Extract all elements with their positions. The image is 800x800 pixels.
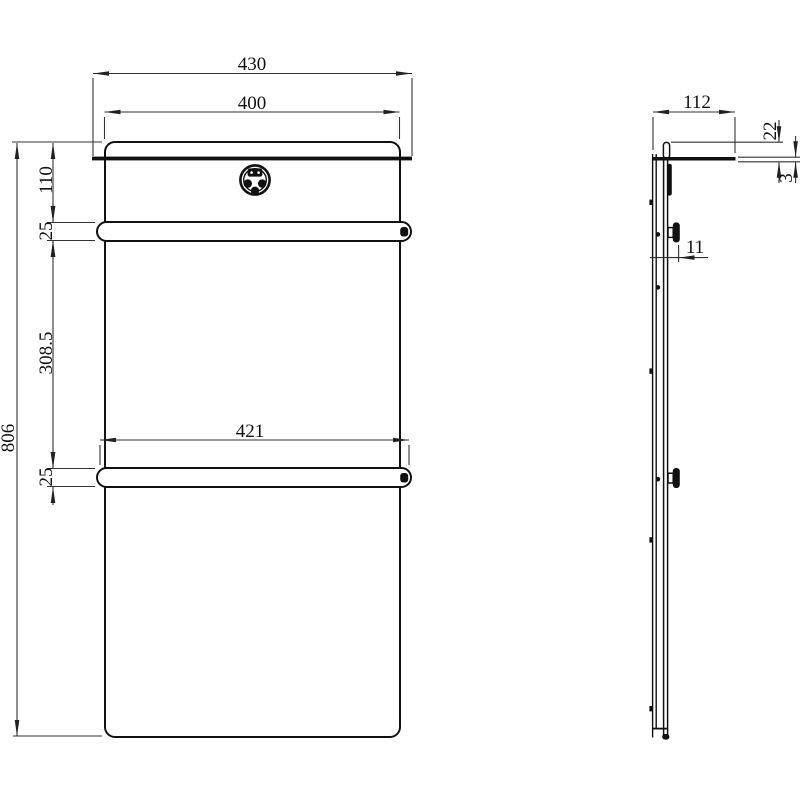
wall-hook-4 xyxy=(649,706,652,711)
wall-hook-1 xyxy=(649,200,652,205)
dim-shelf-thickness: 3 xyxy=(776,136,797,183)
bracket-lower-knob xyxy=(673,468,680,488)
dim-bar-spacing: 308.5 xyxy=(36,241,57,468)
dim-body-width: 400 xyxy=(105,93,400,114)
dim-bar-lower-height: 25 xyxy=(36,450,57,505)
dim-label-308: 308.5 xyxy=(36,332,57,375)
dim-label-421: 421 xyxy=(236,421,265,442)
screw-hole-1 xyxy=(656,232,661,237)
dim-label-806: 806 xyxy=(0,424,19,453)
towel-bar-upper xyxy=(97,222,411,241)
dim-label-110: 110 xyxy=(36,166,57,194)
connector-key-slot xyxy=(248,168,263,176)
dim-label-11: 11 xyxy=(686,237,704,258)
dim-label-25b: 25 xyxy=(36,468,57,487)
bracket-lower-stem xyxy=(668,473,673,483)
wall-hook-2 xyxy=(649,368,652,373)
connector-pin-left xyxy=(244,179,252,187)
dim-label-112: 112 xyxy=(683,92,711,113)
dim-bracket-offset: 11 xyxy=(679,237,708,258)
towel-bar-upper-end-cap xyxy=(400,227,408,237)
dim-label-3: 3 xyxy=(776,173,797,183)
dim-label-430: 430 xyxy=(238,54,267,75)
bar-bracket-upper-side xyxy=(668,222,680,242)
towel-bar-upper-tube xyxy=(97,222,411,241)
dim-top-to-bar: 110 xyxy=(36,143,57,222)
dim-overall-width: 430 xyxy=(93,54,412,75)
screw-hole-3 xyxy=(656,477,661,482)
shelf-side xyxy=(652,157,736,161)
bar-bracket-lower-side xyxy=(668,468,680,488)
dim-label-25a: 25 xyxy=(36,222,57,241)
dim-depth: 112 xyxy=(653,92,735,113)
connector-slot-dot-right xyxy=(257,171,260,174)
towel-bar-lower-end-cap xyxy=(400,473,408,483)
dim-label-22: 22 xyxy=(760,122,781,141)
towel-bar-lower-tube xyxy=(97,468,411,487)
connector-side-bump xyxy=(668,164,672,196)
towel-bar-lower xyxy=(97,468,411,487)
bracket-upper-stem xyxy=(668,228,673,238)
top-shelf-edge-front xyxy=(92,157,412,161)
screw-hole-2 xyxy=(656,285,661,290)
power-connector-icon xyxy=(240,165,269,195)
dim-bar-upper-height: 25 xyxy=(36,204,57,259)
panel-bottom-cap xyxy=(662,734,669,740)
dim-label-400: 400 xyxy=(238,93,267,114)
wall-hook-3 xyxy=(649,537,652,542)
side-view xyxy=(649,142,735,739)
bracket-upper-knob xyxy=(673,222,680,242)
shelf-lip-side xyxy=(663,142,669,158)
connector-slot-dot-left xyxy=(250,171,253,174)
dim-overall-height: 806 xyxy=(0,143,19,736)
technical-drawing-page: 430 400 421 806 110 25 308.5 xyxy=(0,0,800,800)
connector-pin-bottom xyxy=(251,187,259,195)
connector-pin-right xyxy=(258,179,266,187)
towel-warmer-drawing: 430 400 421 806 110 25 308.5 xyxy=(0,0,800,800)
